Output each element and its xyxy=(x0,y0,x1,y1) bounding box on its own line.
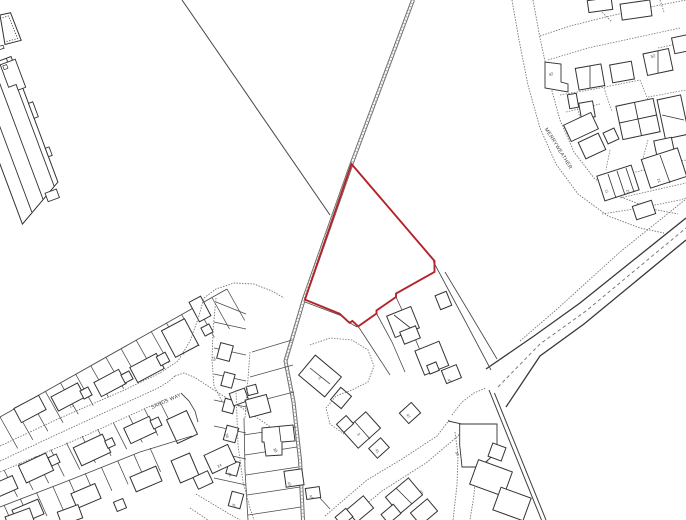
svg-text:29: 29 xyxy=(211,356,217,363)
svg-text:38: 38 xyxy=(454,451,459,457)
svg-text:SANDS WAY: SANDS WAY xyxy=(150,392,182,411)
svg-text:43: 43 xyxy=(227,472,232,477)
